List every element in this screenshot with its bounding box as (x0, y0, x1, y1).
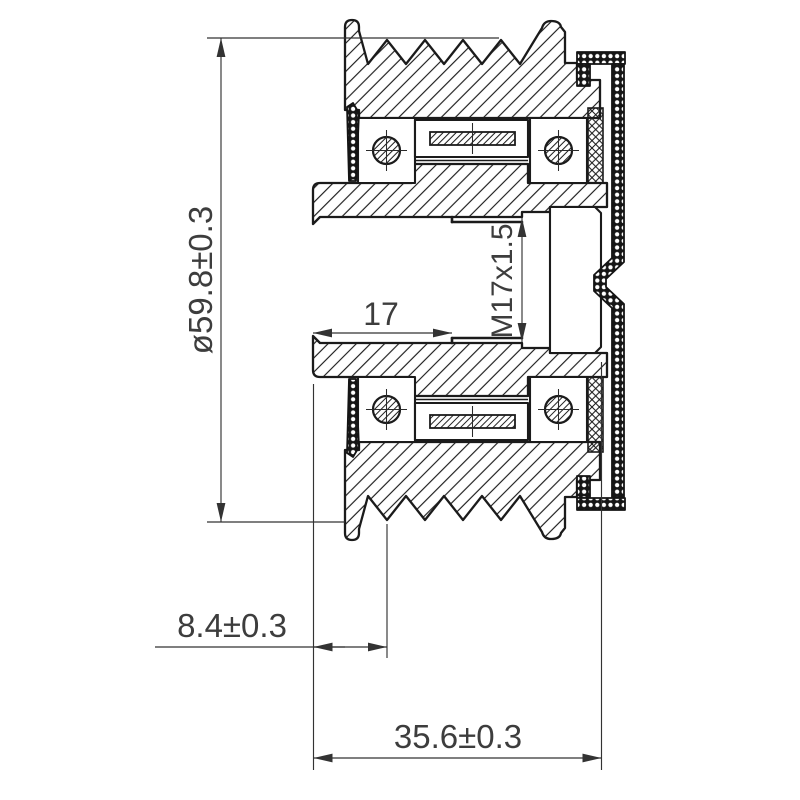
left-seal-bottom (347, 379, 359, 457)
bore-depth-label: 17 (363, 296, 399, 332)
right-seal-bottom (588, 377, 603, 452)
dimension-thread: M17x1.5 (486, 218, 522, 342)
overall-width-label: 35.6±0.3 (394, 718, 522, 755)
one-way-clutch-top (415, 120, 528, 161)
right-seal-top (588, 108, 603, 183)
face-to-groove-label: 8.4±0.3 (177, 607, 287, 644)
drawing-canvas: ø59.8±0.3 17 M17x1.5 8.4±0.3 35.6±0.3 (0, 0, 800, 800)
pulley-cross-section-drawing: ø59.8±0.3 17 M17x1.5 8.4±0.3 35.6±0.3 (0, 0, 800, 800)
thread-label: M17x1.5 (486, 223, 519, 338)
outer-diameter-label: ø59.8±0.3 (182, 206, 219, 354)
left-seal-top (347, 103, 359, 181)
one-way-clutch-bottom (415, 400, 528, 441)
